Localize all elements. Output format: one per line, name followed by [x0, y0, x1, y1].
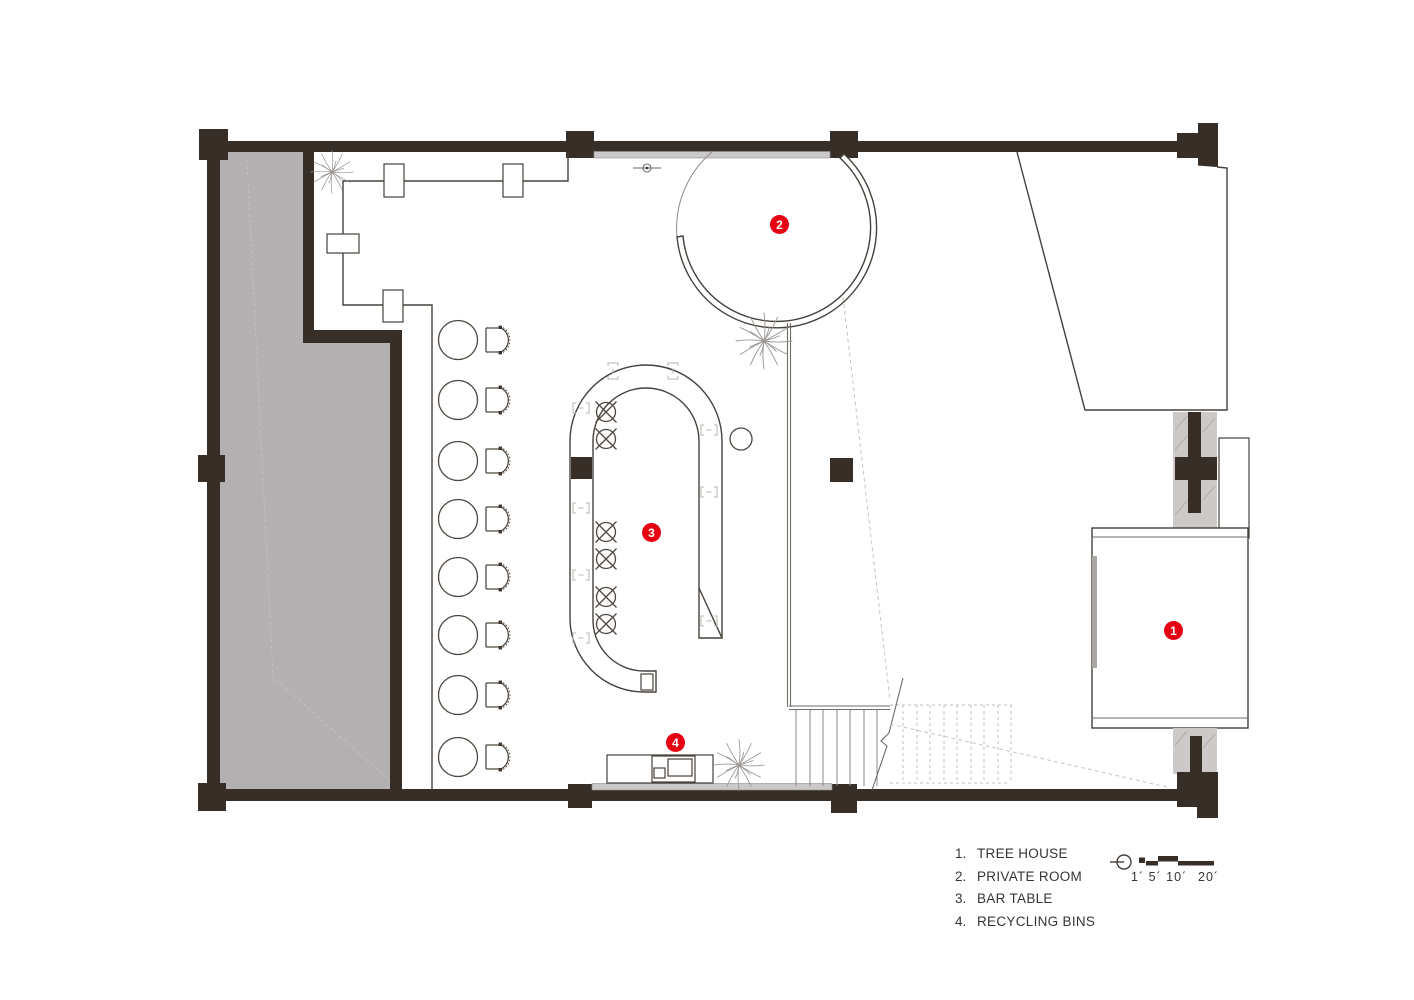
exterior-bench — [1219, 438, 1249, 538]
legend-item-label: RECYCLING BINS — [977, 914, 1095, 929]
column — [571, 457, 592, 479]
scale-large-tick-label: 20´ — [1198, 870, 1219, 884]
masonry-wall-lower — [1173, 728, 1218, 818]
table-and-chair — [439, 321, 511, 360]
table-and-chair — [439, 558, 511, 597]
column — [1198, 123, 1218, 167]
table-and-chair — [439, 676, 511, 715]
recycling-bins — [607, 755, 713, 783]
legend-item-number: 3. — [955, 891, 977, 906]
legend-item-number: 2. — [955, 869, 977, 884]
terrace-area — [220, 152, 402, 790]
marker-bar-table: 3 — [642, 523, 661, 542]
marker-tree-house: 1 — [1164, 621, 1183, 640]
legend-item-label: TREE HOUSE — [977, 846, 1068, 861]
scale-bar — [1110, 855, 1214, 869]
private-room-curved-wall — [677, 154, 877, 328]
dining-tables — [439, 321, 511, 777]
railing — [788, 297, 891, 707]
legend-item-number: 1. — [955, 846, 977, 861]
masonry-wall-upper — [1173, 412, 1217, 529]
legend-item: 1. TREE HOUSE — [955, 846, 1095, 861]
column — [198, 455, 225, 482]
legend-item: 3. BAR TABLE — [955, 891, 1095, 906]
legend-item-label: BAR TABLE — [977, 891, 1053, 906]
marker-private-room: 2 — [770, 215, 789, 234]
counter-end-cap — [641, 674, 653, 690]
legend: 1. TREE HOUSE 2. PRIVATE ROOM 3. BAR TAB… — [955, 846, 1095, 936]
column — [568, 784, 592, 808]
legend-item: 4. RECYCLING BINS — [955, 914, 1095, 929]
column — [1177, 133, 1198, 158]
table-and-chair — [439, 442, 511, 481]
table-and-chair — [439, 500, 511, 539]
marker-recycling-bins: 4 — [666, 733, 685, 752]
legend-item: 2. PRIVATE ROOM — [955, 869, 1095, 884]
column — [198, 783, 226, 811]
sloped-room-fill — [1017, 152, 1227, 410]
private-room — [633, 152, 877, 328]
floor-plan-drawing — [0, 0, 1414, 1000]
private-room-thin-arc — [677, 152, 712, 237]
column — [831, 784, 857, 813]
table-and-chair — [439, 738, 511, 777]
scale-small-ticks-label: 1´ 5´ 10´ — [1131, 870, 1187, 884]
column — [566, 131, 594, 158]
legend-item-label: PRIVATE ROOM — [977, 869, 1082, 884]
floor-plan: 1 2 3 4 1. TREE HOUSE 2. PRIVATE ROOM 3.… — [0, 0, 1414, 1000]
side-stool — [730, 428, 752, 450]
legend-item-number: 4. — [955, 914, 977, 929]
table-and-chair — [439, 381, 511, 420]
table-and-chair — [439, 616, 511, 655]
right-wing — [1017, 152, 1249, 818]
bar-table — [570, 363, 752, 692]
column — [199, 129, 228, 160]
column — [830, 458, 853, 482]
